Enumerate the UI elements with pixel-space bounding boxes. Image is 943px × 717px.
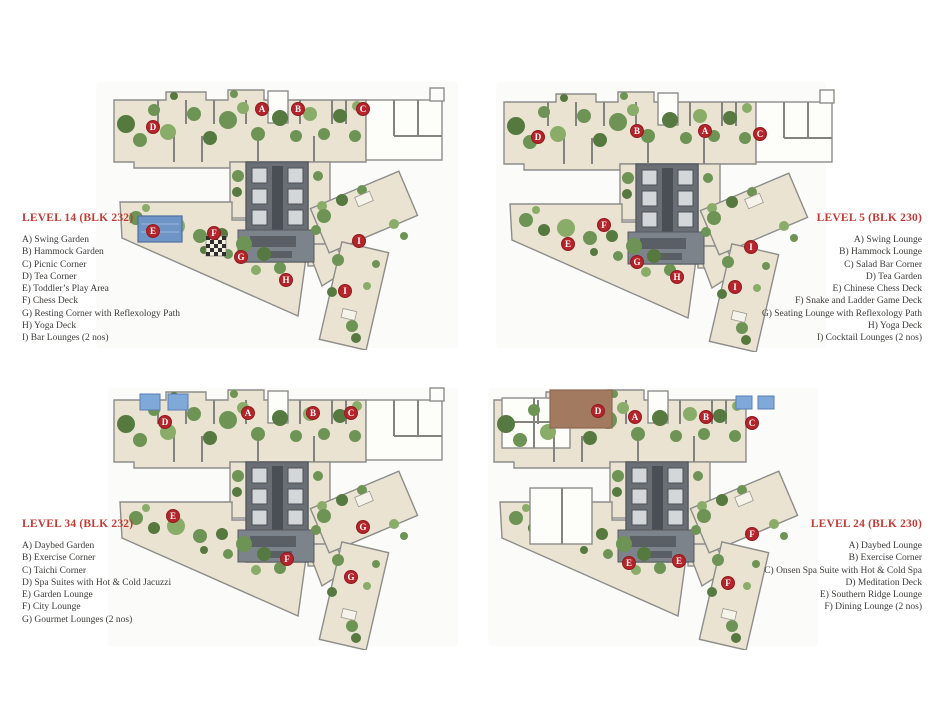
legend-item: D) Spa Suites with Hot & Cold Jacuzzi <box>22 577 171 589</box>
plan-marker-a: A <box>241 406 255 420</box>
legend-item: A) Daybed Garden <box>22 540 171 552</box>
plan-marker-c: C <box>344 406 358 420</box>
legend-level-14: LEVEL 14 (BLK 232) A) Swing GardenB) Ham… <box>22 212 180 345</box>
plan-marker-i: I <box>338 284 352 298</box>
plan-marker-b: B <box>291 102 305 116</box>
plan-marker-d: D <box>146 120 160 134</box>
plan-marker-a: A <box>628 410 642 424</box>
plan-marker-e: E <box>561 237 575 251</box>
legend-item: I) Bar Lounges (2 nos) <box>22 332 180 344</box>
legend-item: C) Onsen Spa Suite with Hot & Cold Spa <box>764 565 922 577</box>
legend-items: A) Swing LoungeB) Hammock LoungeC) Salad… <box>762 234 922 345</box>
legend-level-34: LEVEL 34 (BLK 232) A) Daybed GardenB) Ex… <box>22 518 171 626</box>
legend-item: A) Swing Lounge <box>762 234 922 246</box>
legend-item: G) Resting Corner with Reflexology Path <box>22 308 180 320</box>
legend-item: C) Picnic Corner <box>22 259 180 271</box>
legend-item: D) Tea Garden <box>762 271 922 283</box>
plan-marker-a: A <box>255 102 269 116</box>
legend-item: C) Taichi Corner <box>22 565 171 577</box>
plan-marker-f: F <box>280 552 294 566</box>
legend-item: B) Hammock Lounge <box>762 246 922 258</box>
legend-item: D) Tea Corner <box>22 271 180 283</box>
plan-marker-h: H <box>670 270 684 284</box>
sky-terrace-floor-plans-page: { "colors": { "marker_red": "#b5242a", "… <box>0 0 943 717</box>
legend-item: E) Toddler’s Play Area <box>22 283 180 295</box>
legend-item: F) Dining Lounge (2 nos) <box>764 601 922 613</box>
legend-title: LEVEL 5 (BLK 230) <box>762 212 922 225</box>
plan-marker-d: D <box>591 404 605 418</box>
legend-item: A) Swing Garden <box>22 234 180 246</box>
legend-level-24: LEVEL 24 (BLK 230) A) Daybed LoungeB) Ex… <box>764 518 922 614</box>
legend-item: E) Southern Ridge Lounge <box>764 589 922 601</box>
plan-marker-f: F <box>745 527 759 541</box>
legend-item: H) Yoga Deck <box>22 320 180 332</box>
plan-marker-i: I <box>352 234 366 248</box>
legend-item: F) Chess Deck <box>22 295 180 307</box>
legend-title: LEVEL 24 (BLK 230) <box>764 518 922 531</box>
legend-title: LEVEL 14 (BLK 232) <box>22 212 180 225</box>
legend-item: H) Yoga Deck <box>762 320 922 332</box>
legend-item: B) Exercise Corner <box>22 552 171 564</box>
legend-level-5: LEVEL 5 (BLK 230) A) Swing LoungeB) Hamm… <box>762 212 922 345</box>
plan-marker-d: D <box>531 130 545 144</box>
plan-marker-a: A <box>698 124 712 138</box>
legend-items: A) Daybed LoungeB) Exercise CornerC) Ons… <box>764 540 922 614</box>
legend-title: LEVEL 34 (BLK 232) <box>22 518 171 531</box>
plan-marker-c: C <box>745 416 759 430</box>
legend-item: A) Daybed Lounge <box>764 540 922 552</box>
plan-marker-h: H <box>279 273 293 287</box>
legend-item: E) Chinese Chess Deck <box>762 283 922 295</box>
legend-items: A) Daybed GardenB) Exercise CornerC) Tai… <box>22 540 171 626</box>
plan-marker-f: F <box>207 226 221 240</box>
plan-marker-f: F <box>597 218 611 232</box>
legend-item: F) Snake and Ladder Game Deck <box>762 295 922 307</box>
plan-marker-i: I <box>744 240 758 254</box>
legend-item: D) Meditation Deck <box>764 577 922 589</box>
legend-item: F) City Lounge <box>22 601 171 613</box>
legend-item: B) Hammock Garden <box>22 246 180 258</box>
plan-marker-g: G <box>630 255 644 269</box>
plan-marker-g: G <box>344 570 358 584</box>
legend-items: A) Swing GardenB) Hammock GardenC) Picni… <box>22 234 180 345</box>
plan-marker-d: D <box>158 415 172 429</box>
plan-marker-e: E <box>622 556 636 570</box>
legend-item: G) Seating Lounge with Reflexology Path <box>762 308 922 320</box>
plan-marker-e: E <box>672 554 686 568</box>
plan-marker-c: C <box>753 127 767 141</box>
plan-marker-c: C <box>356 102 370 116</box>
legend-item: E) Garden Lounge <box>22 589 171 601</box>
plan-marker-g: G <box>356 520 370 534</box>
plan-marker-g: G <box>234 250 248 264</box>
legend-item: B) Exercise Corner <box>764 552 922 564</box>
legend-item: C) Salad Bar Corner <box>762 259 922 271</box>
plan-marker-i: I <box>728 280 742 294</box>
plan-marker-b: B <box>699 410 713 424</box>
legend-item: G) Gourmet Lounges (2 nos) <box>22 614 171 626</box>
plan-marker-b: B <box>306 406 320 420</box>
plan-marker-f: F <box>721 576 735 590</box>
plan-marker-b: B <box>630 124 644 138</box>
legend-item: I) Cocktail Lounges (2 nos) <box>762 332 922 344</box>
